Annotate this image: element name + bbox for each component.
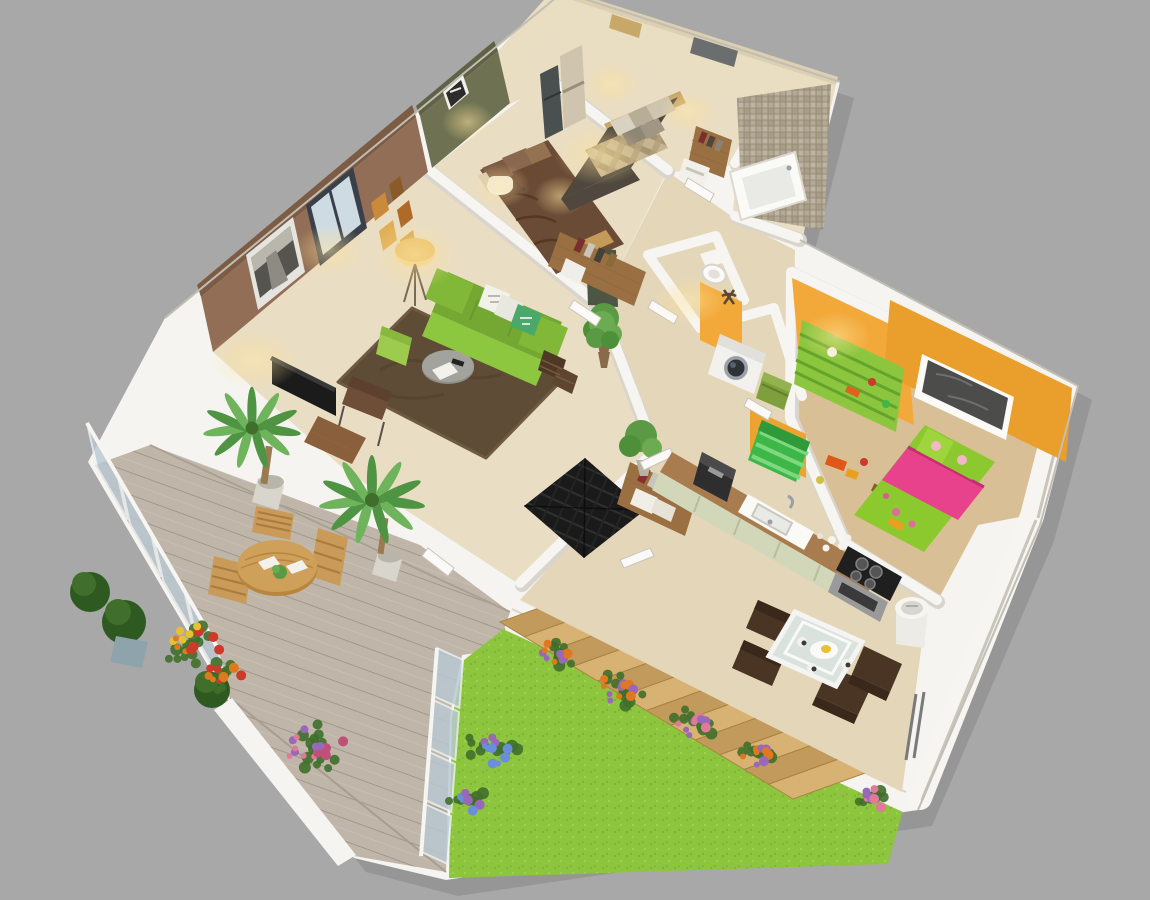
render-canvas: [0, 0, 1150, 900]
floor-plan-render: [0, 0, 1150, 900]
trash-bin: [895, 597, 929, 648]
bedroom2-drum-lamp: [470, 164, 530, 208]
bathroom: [730, 84, 831, 230]
terrace-round-table: [237, 540, 317, 596]
